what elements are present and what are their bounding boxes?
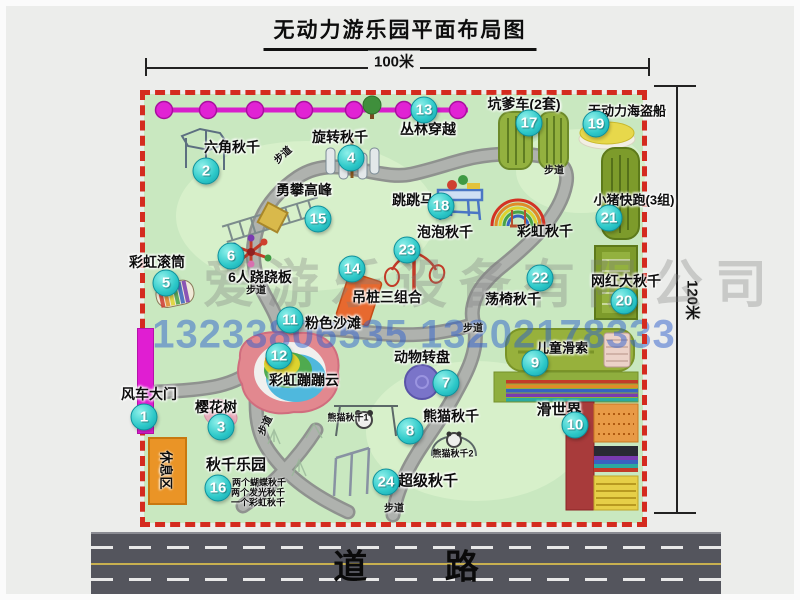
attraction-label-5: 彩虹滚筒	[129, 252, 185, 272]
extra-label: 休息区	[158, 450, 177, 489]
attraction-marker-3: 3	[208, 414, 235, 441]
attraction-label-7: 动物转盘	[394, 347, 450, 367]
path-label: 步道	[463, 320, 483, 335]
attraction-marker-6: 6	[218, 243, 245, 270]
path-label: 步道	[246, 282, 266, 297]
attraction-label-1: 风车大门	[121, 384, 177, 404]
attraction-marker-17: 17	[516, 110, 543, 137]
attraction-marker-1: 1	[131, 404, 158, 431]
attraction-label-15: 勇攀高峰	[276, 180, 332, 200]
attraction-marker-11: 11	[277, 307, 304, 334]
attraction-marker-24: 24	[373, 469, 400, 496]
path-label: 步道	[384, 500, 404, 515]
attraction-marker-22: 22	[527, 265, 554, 292]
attraction-marker-16: 16	[205, 475, 232, 502]
path-label: 步道	[544, 162, 564, 177]
attraction-marker-23: 23	[394, 237, 421, 264]
attraction-label-22: 荡椅秋千	[485, 289, 541, 309]
attraction-marker-21: 21	[596, 205, 623, 232]
attraction-marker-20: 20	[611, 288, 638, 315]
attraction-marker-9: 9	[522, 350, 549, 377]
attraction-label-12: 彩虹蹦蹦云	[269, 370, 339, 390]
labels-and-markers: 风车大门1六角秋千2樱花树3旋转秋千4彩虹滚筒56人跷跷板6动物转盘7熊猫秋千8…	[6, 6, 800, 600]
attraction-label-16: 秋千乐园	[206, 454, 266, 475]
attraction-label-2: 六角秋千	[204, 137, 260, 157]
path-label: 步道	[253, 413, 275, 437]
attraction-label-8: 熊猫秋千	[423, 406, 479, 426]
attraction-marker-18: 18	[428, 193, 455, 220]
attraction-label-4: 旋转秋千	[312, 127, 368, 147]
attraction-marker-13: 13	[411, 97, 438, 124]
attraction-marker-14: 14	[339, 256, 366, 283]
attraction-marker-19: 19	[583, 111, 610, 138]
attraction-marker-12: 12	[266, 343, 293, 370]
attraction-marker-2: 2	[193, 158, 220, 185]
attraction-label-23: 泡泡秋千	[417, 222, 473, 242]
attraction-marker-8: 8	[397, 418, 424, 445]
extra-label: 一个彩虹秋千	[231, 496, 285, 509]
path-label: 步道	[270, 142, 295, 167]
attraction-marker-15: 15	[305, 206, 332, 233]
attraction-label-24: 超级秋千	[398, 470, 458, 491]
attraction-marker-5: 5	[153, 270, 180, 297]
attraction-marker-7: 7	[433, 370, 460, 397]
park-layout-plan: 无动力游乐园平面布局图 100米 120米	[0, 0, 800, 600]
extra-label: 熊猫秋千1	[327, 411, 368, 424]
attraction-marker-4: 4	[338, 145, 365, 172]
attraction-label-11: 粉色沙滩	[305, 313, 361, 333]
extra-label: 熊猫秋千2	[432, 447, 473, 460]
extra-label: 彩虹秋千	[517, 221, 573, 241]
attraction-marker-10: 10	[562, 412, 589, 439]
attraction-label-14: 吊桩三组合	[352, 287, 422, 307]
